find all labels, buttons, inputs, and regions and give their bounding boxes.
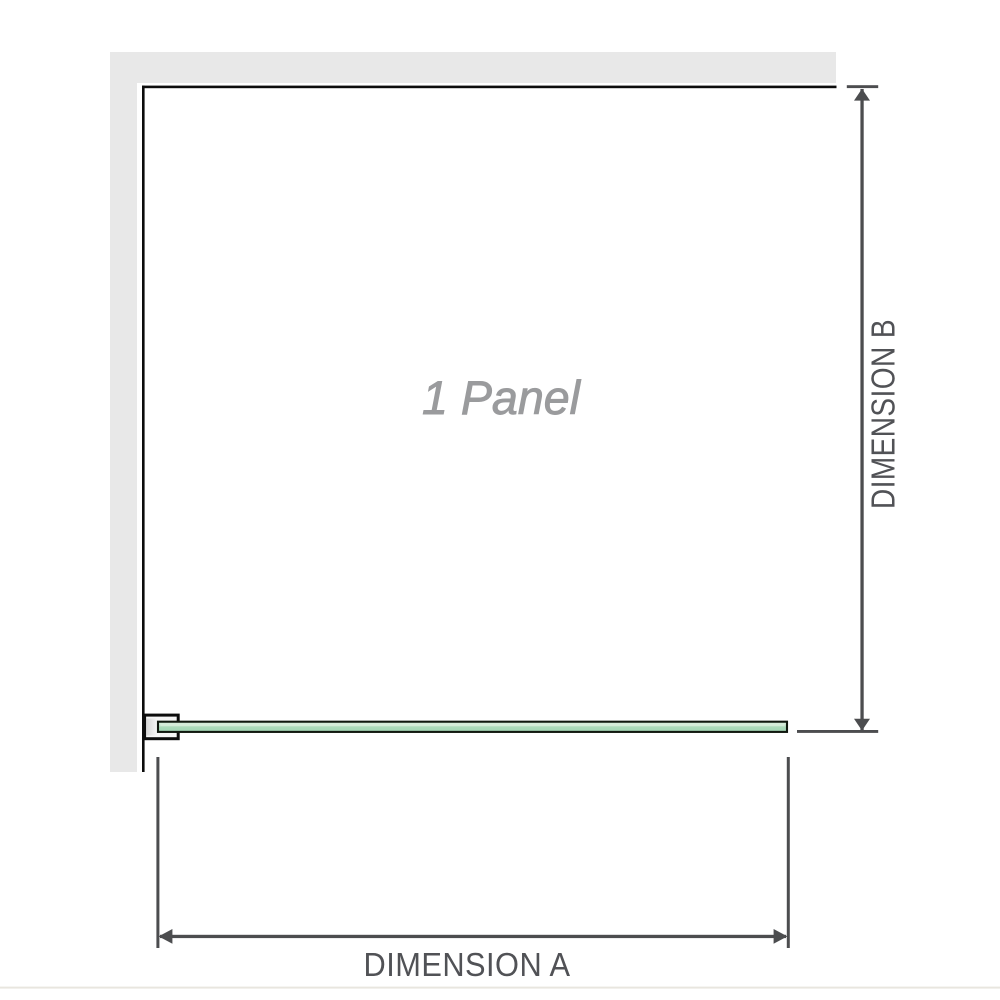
svg-text:1 Panel: 1 Panel bbox=[422, 371, 582, 424]
svg-text:DIMENSION A: DIMENSION A bbox=[364, 946, 571, 983]
svg-text:DIMENSION B: DIMENSION B bbox=[865, 319, 902, 509]
